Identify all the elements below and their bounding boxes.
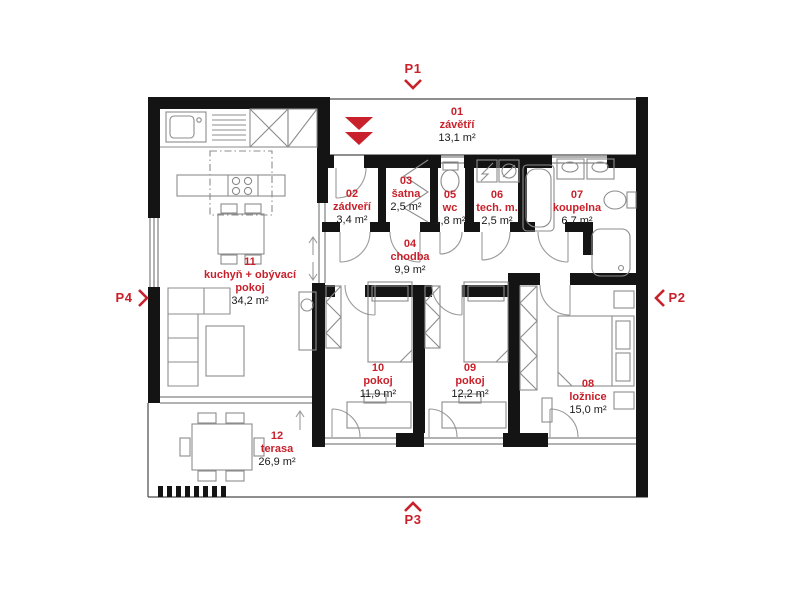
room-area: 26,9 m² <box>212 456 342 469</box>
dining-table <box>218 204 264 264</box>
stove <box>250 109 288 147</box>
room-area: 13,1 m² <box>392 132 522 145</box>
room-name: závětří <box>392 119 522 132</box>
washbasin-left <box>557 159 584 179</box>
wall-left-upper <box>148 97 160 218</box>
room-area: 34,2 m² <box>198 295 302 308</box>
chevron-up-icon <box>405 503 421 511</box>
room-name: chodba <box>345 251 475 264</box>
room-number: 08 <box>523 378 653 391</box>
nightstand-top <box>614 291 634 308</box>
door-bedroom <box>540 285 570 315</box>
tall-cabinet <box>288 109 317 147</box>
room-name: terasa <box>212 443 342 456</box>
wall-room09-bedroom <box>508 273 520 433</box>
window-left <box>150 218 158 287</box>
room-area: 6,7 m² <box>512 215 642 228</box>
room-number: 04 <box>345 238 475 251</box>
room-label-01: 01 závětří 13,1 m² <box>392 106 522 145</box>
chevron-left-icon <box>656 290 664 306</box>
room-name: koupelna <box>512 202 642 215</box>
room-number: 10 <box>313 362 443 375</box>
wall-right <box>636 97 648 497</box>
room-number: 07 <box>512 189 642 202</box>
chevron-down-icon <box>405 80 421 88</box>
marker-p1: P1 <box>405 61 422 76</box>
double-bed <box>558 316 634 386</box>
room-number: 03 <box>354 175 458 188</box>
room-label-11: 11 kuchyň + obývací pokoj 34,2 m² <box>198 256 302 308</box>
terrace-sliding-door <box>160 397 312 403</box>
room-name: ložnice <box>523 391 653 404</box>
marker-p4: P4 <box>116 290 133 305</box>
room-area: 3,4 m² <box>300 214 404 227</box>
coffee-table <box>206 326 244 376</box>
wall-left-lower <box>148 287 160 403</box>
dish-rack <box>212 115 246 140</box>
room-number: 01 <box>392 106 522 119</box>
room-label-07: 07 koupelna 6,7 m² <box>512 189 642 228</box>
entrance-arrows-icon <box>345 117 373 145</box>
terrace-step-dashes <box>158 486 226 497</box>
kitchen-island <box>177 151 285 215</box>
room-label-10: 10 pokoj 11,9 m² <box>313 362 443 401</box>
wall-top-kitchen <box>148 97 330 109</box>
room-number: 11 <box>198 256 302 269</box>
room-area: 9,9 m² <box>345 264 475 277</box>
marker-p2: P2 <box>669 290 686 305</box>
chevron-right-icon <box>139 290 147 306</box>
room-area: 15,0 m² <box>523 404 653 417</box>
door-bathroom <box>538 232 568 262</box>
marker-p3: P3 <box>405 512 422 527</box>
room-area: 11,9 m² <box>313 388 443 401</box>
room-label-04: 04 chodba 9,9 m² <box>345 238 475 277</box>
room-label-12: 12 terasa 26,9 m² <box>212 430 342 469</box>
room-number: 12 <box>212 430 342 443</box>
room-name: pokoj <box>313 375 443 388</box>
shower <box>592 229 630 276</box>
patio-door-room09 <box>429 409 457 437</box>
door-tech-room <box>482 232 510 260</box>
kitchen-counter <box>160 109 317 147</box>
room-label-08: 08 ložnice 15,0 m² <box>523 378 653 417</box>
floor-plan: 01 závětří 13,1 m² 02 zádveří 3,4 m² 03 … <box>0 0 800 600</box>
kitchen-sink <box>166 112 206 142</box>
window-bedrooms-south <box>322 438 636 444</box>
room-name: kuchyň + obývací pokoj <box>198 269 302 295</box>
